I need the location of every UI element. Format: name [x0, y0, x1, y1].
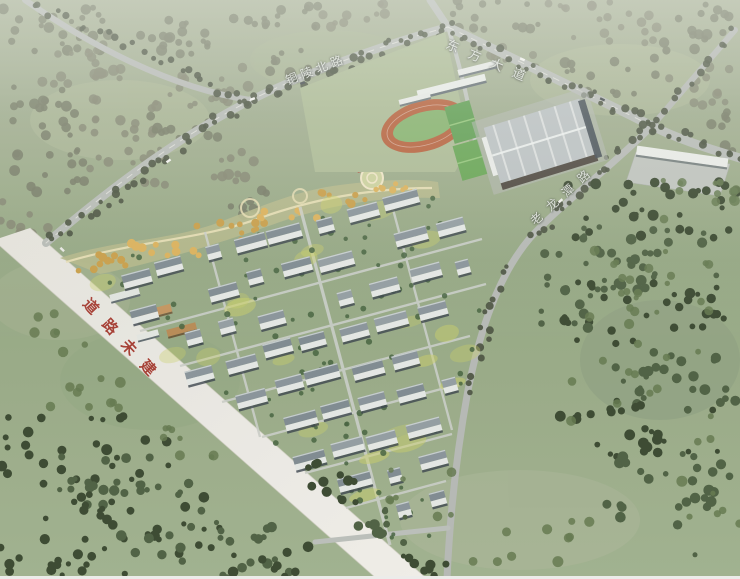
aerial-masterplan-rendering: 铜陵北路 东方大道 老龙潭路 道路未建	[0, 0, 740, 579]
rendering-scene	[0, 0, 740, 579]
